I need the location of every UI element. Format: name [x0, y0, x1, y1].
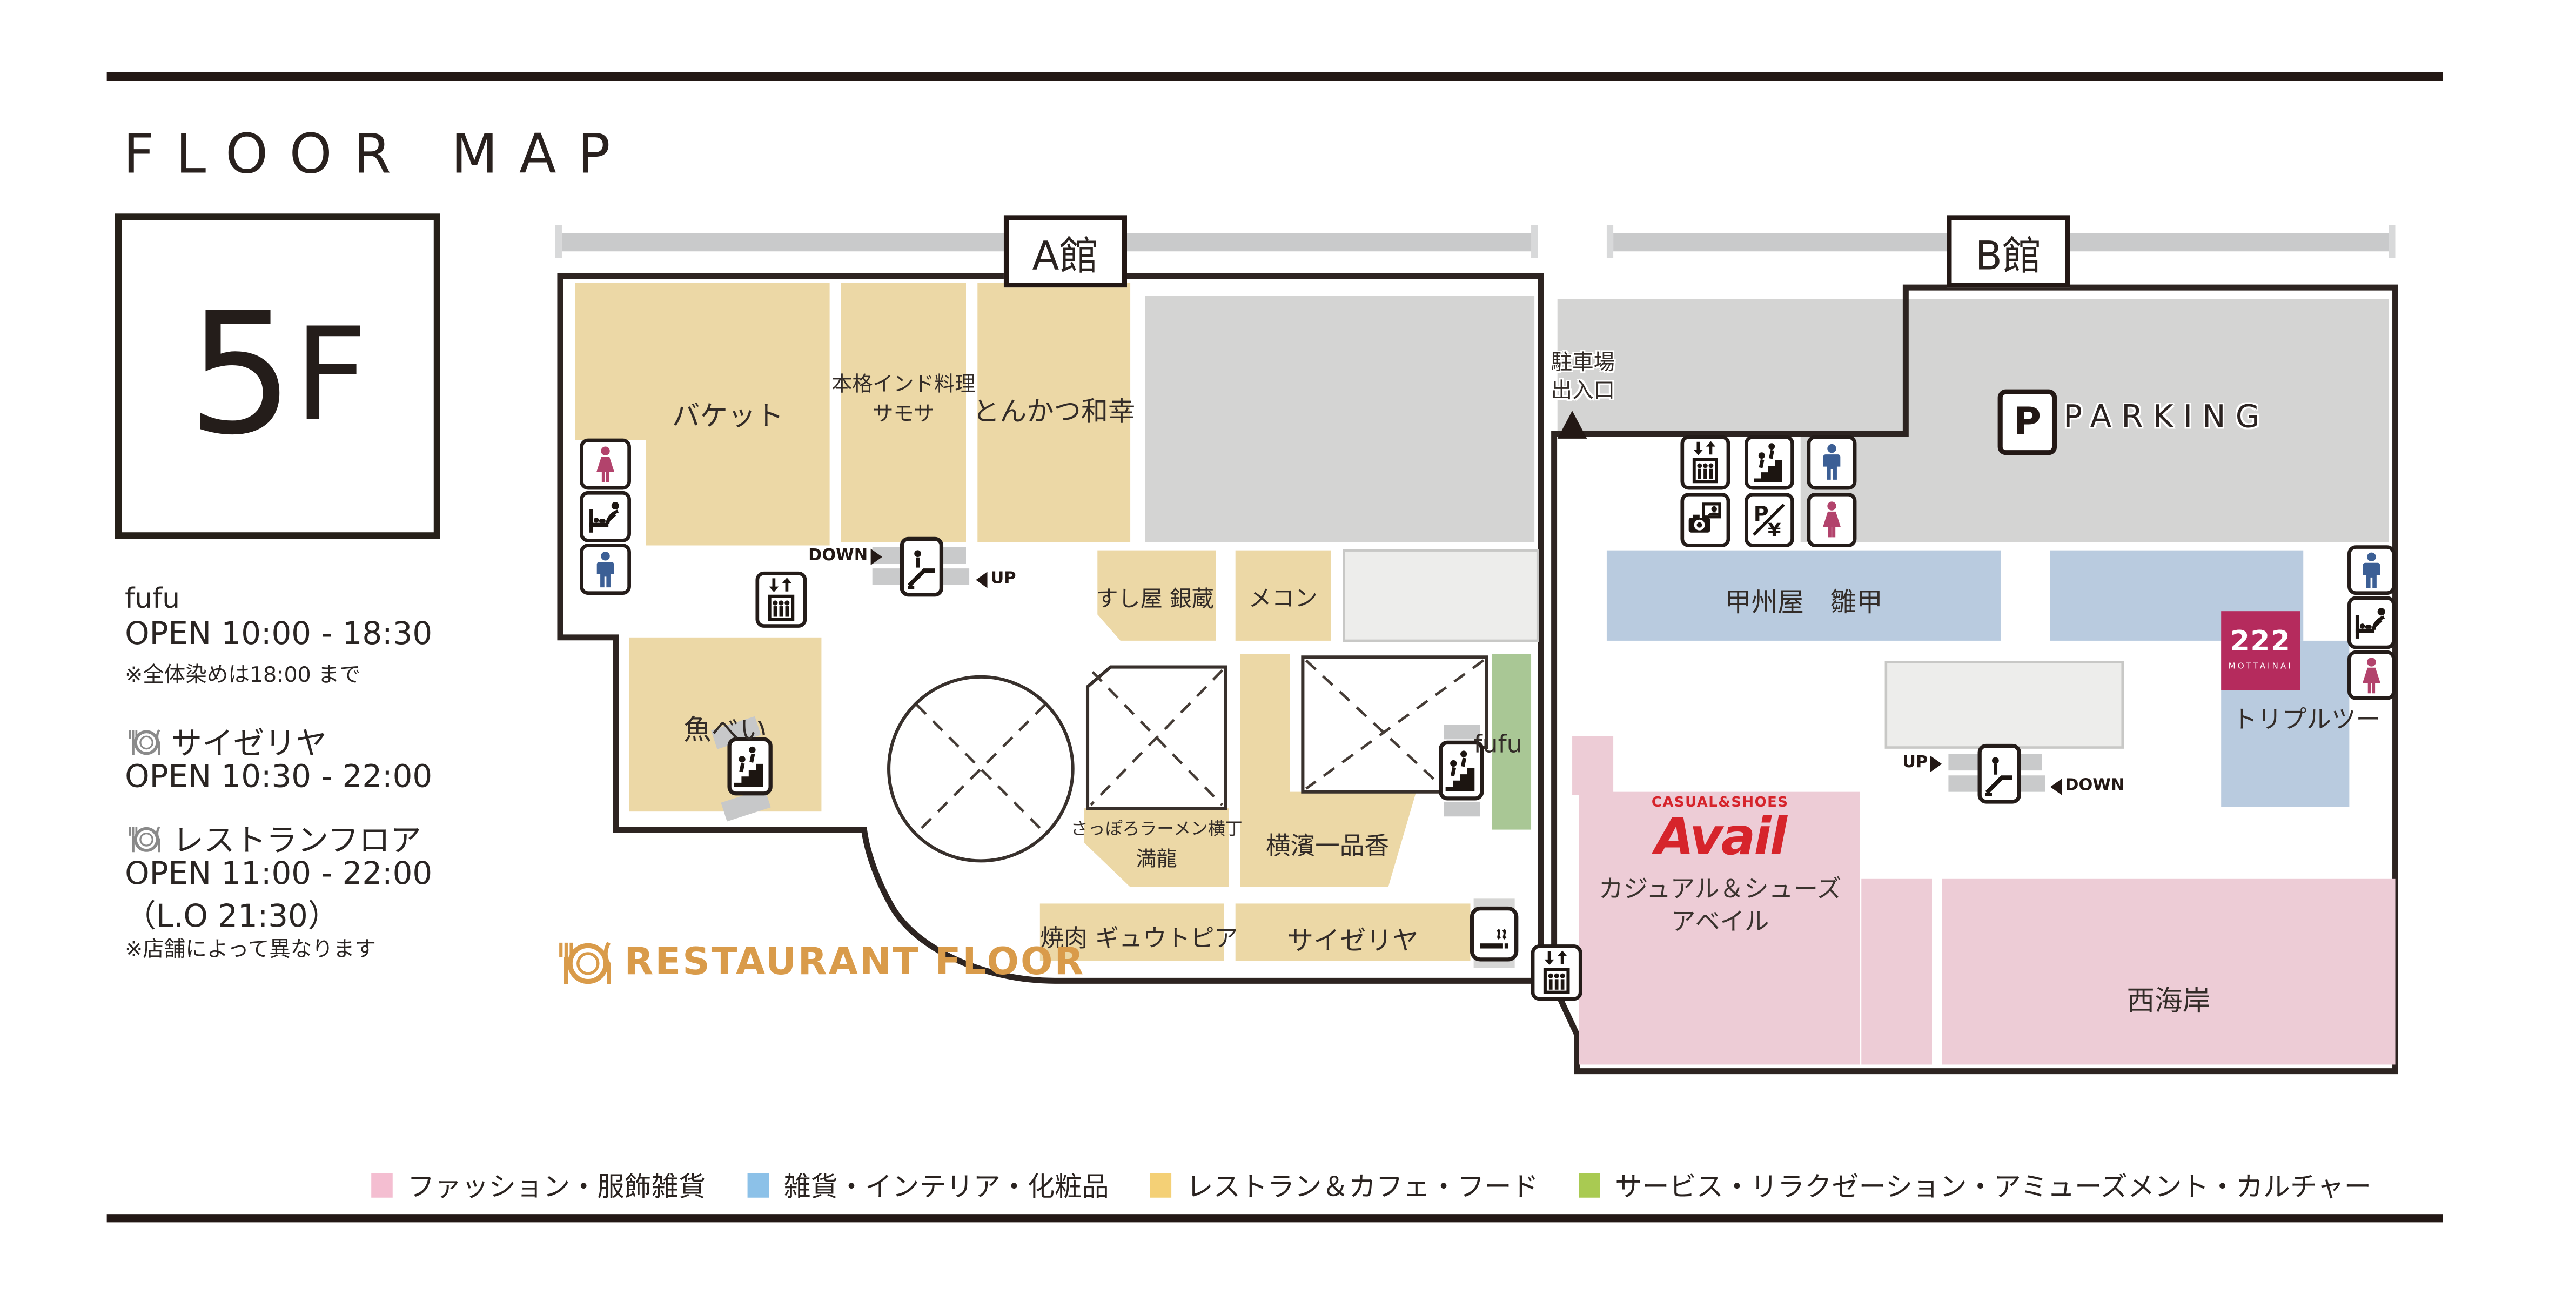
- escalator-a: [873, 539, 969, 594]
- male-restroom-icon-b1: [1809, 437, 1855, 488]
- elevator-icon-a: [757, 573, 805, 626]
- escalator-b-down-label: DOWN: [2050, 777, 2124, 795]
- legend-item-restaurant: レストラン＆カフェ・フード: [1150, 1165, 1539, 1204]
- arrow-left-icon: [976, 571, 987, 587]
- legend-item-goods: 雑貨・インテリア・化粧品: [748, 1165, 1109, 1204]
- escalator-b: [1948, 746, 2045, 802]
- triple-two-logo: 222 MOTTAINAI: [2221, 611, 2300, 690]
- vacant-unit-a: [1344, 551, 1538, 641]
- floor-map-page: FLOOR MAP 5F fufu OPEN 10:00 - 18:30 ※全体…: [0, 0, 2576, 1307]
- baby-changing-icon: [581, 493, 629, 540]
- store-label-uobei: 魚べい: [641, 707, 810, 748]
- female-restroom-icon-b1: [1809, 494, 1855, 545]
- female-restroom-icon-b2: [2349, 652, 2393, 698]
- stairs-icon-b: [1746, 437, 1792, 488]
- vacant-unit-b: [1886, 662, 2123, 747]
- elevator-icon-ab: [1533, 947, 1580, 999]
- store-label-koshuya: 甲州屋 雛甲: [1607, 580, 2001, 619]
- floor-map-canvas: P ¥: [0, 0, 2576, 1307]
- photo-booth-icon: [1682, 494, 1728, 545]
- parking-entrance-label: 駐車場 出入口: [1551, 352, 1615, 407]
- store-label-bucket: バケット: [646, 393, 810, 434]
- store-label-triple-two: トリプルツー: [2215, 701, 2399, 736]
- store-label-nishikaigan: 西海岸: [1942, 977, 2395, 1018]
- store-label-fufu: fufu: [1474, 729, 1522, 759]
- store-block-avail-east: [1861, 879, 1932, 1065]
- building-b-label: B館: [1947, 215, 2070, 287]
- restaurant-floor-label: RESTAURANT FLOOR: [625, 941, 1085, 984]
- avail-name-line1: カジュアル＆シューズ: [1579, 871, 1861, 905]
- parking-payment-icon: [1746, 494, 1792, 545]
- legend-swatch-fashion: [371, 1172, 393, 1197]
- arrow-left-icon: [2050, 778, 2062, 794]
- avail-logo-block: CASUAL&SHOES Avail カジュアル＆シューズ アベイル: [1579, 795, 1861, 938]
- baby-changing-icon-b: [2349, 598, 2393, 647]
- avail-logo: Avail: [1579, 811, 1861, 865]
- atrium-void-circle: [889, 677, 1073, 861]
- store-label-samosa: 本格インド料理 サモサ: [830, 370, 978, 427]
- store-label-yokohama-ippinko: 横濱一品香: [1245, 828, 1410, 863]
- arrow-right-icon: [1931, 755, 1942, 771]
- building-a-label: A館: [1004, 215, 1127, 287]
- store-block-avail-arm: [1572, 736, 1613, 795]
- arrow-right-icon: [871, 548, 882, 564]
- male-restroom-icon: [581, 546, 629, 593]
- legend-swatch-service: [1579, 1172, 1600, 1197]
- legend-item-fashion: ファッション・服飾雑貨: [371, 1165, 706, 1204]
- store-label-sapporo-ramen: さっぽろラーメン横丁: [1061, 816, 1252, 841]
- store-label-manryu: 満龍: [1061, 841, 1252, 873]
- building-b-bar-cap-left: [1607, 225, 1613, 258]
- escalator-a-down-label: DOWN: [808, 547, 882, 565]
- a-rooftop-gray-area: [1145, 296, 1534, 542]
- store-label-tonkatsu: とんかつ和幸: [971, 390, 1137, 429]
- female-restroom-icon: [581, 440, 629, 488]
- parking-p-icon: P: [1998, 390, 2057, 455]
- legend-swatch-goods: [748, 1172, 769, 1197]
- building-a-bar-cap-left: [555, 225, 562, 258]
- escalator-b-up-label: UP: [1902, 754, 1942, 772]
- legend-swatch-restaurant: [1150, 1172, 1172, 1197]
- elevator-icon-b: [1682, 437, 1728, 488]
- store-label-sushi-ginzo: すし屋 銀蔵: [1088, 580, 1222, 613]
- building-b-bar-cap-right: [2389, 225, 2395, 258]
- building-a-bar-cap-right: [1531, 225, 1538, 258]
- escalator-a-up-label: UP: [976, 570, 1016, 588]
- parking-label: PARKING: [2063, 399, 2269, 435]
- smoking-room-icon: [1472, 898, 1517, 968]
- legend-item-service: サービス・リラクゼーション・アミューズメント・カルチャー: [1579, 1165, 2371, 1204]
- store-block-nishikaigan: [1942, 879, 2395, 1065]
- avail-name-line2: アベイル: [1579, 905, 1861, 938]
- store-label-mekong: メコン: [1236, 581, 1331, 614]
- male-restroom-icon-b2: [2349, 547, 2393, 593]
- restaurant-floor-icon: [561, 943, 609, 984]
- store-label-saizeriya: サイゼリヤ: [1236, 918, 1471, 958]
